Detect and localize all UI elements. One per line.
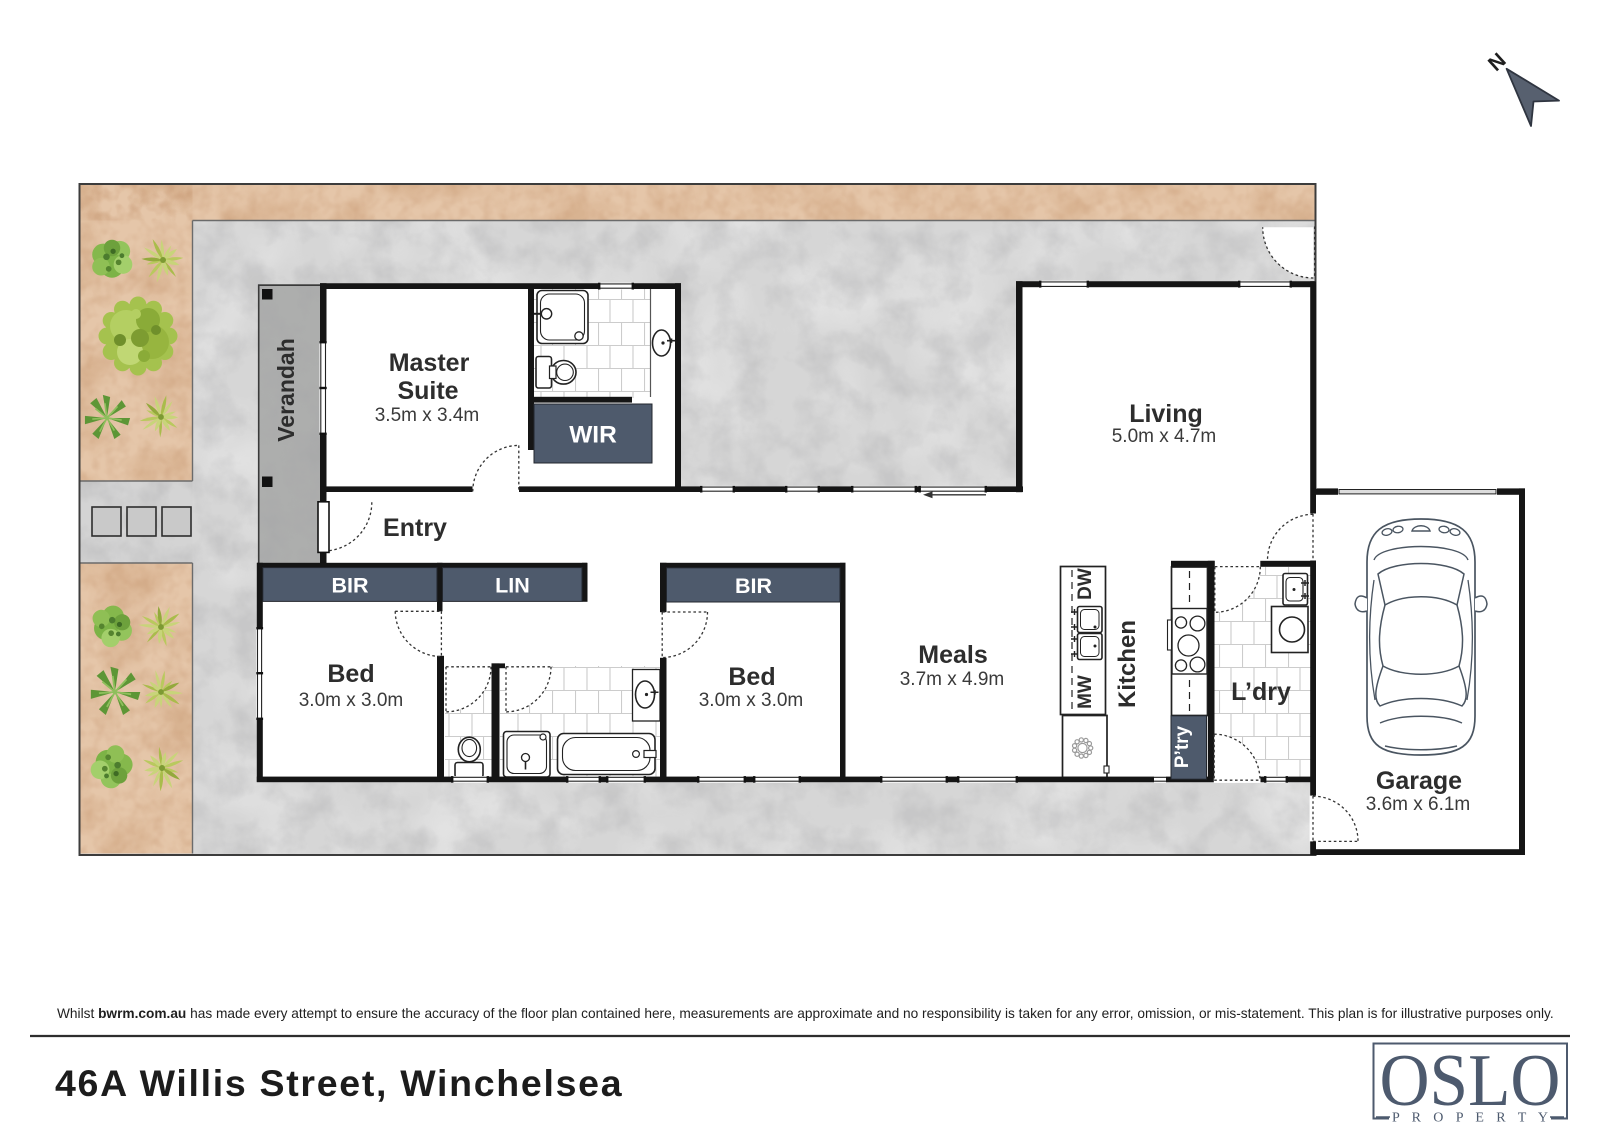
- svg-text:P R O P E R T Y: P R O P E R T Y: [1392, 1111, 1548, 1126]
- svg-text:5.0m x 4.7m: 5.0m x 4.7m: [1112, 426, 1217, 447]
- svg-text:Entry: Entry: [383, 514, 447, 542]
- svg-text:DW: DW: [1075, 568, 1096, 600]
- svg-text:Meals: Meals: [918, 641, 987, 669]
- svg-text:Bed: Bed: [327, 660, 374, 688]
- svg-text:3.0m x 3.0m: 3.0m x 3.0m: [699, 690, 804, 711]
- svg-text:Suite: Suite: [397, 377, 458, 405]
- svg-text:Bed: Bed: [728, 663, 775, 691]
- svg-text:N: N: [1484, 49, 1511, 76]
- svg-text:3.7m x 4.9m: 3.7m x 4.9m: [900, 669, 1005, 690]
- svg-text:L’dry: L’dry: [1231, 678, 1291, 706]
- svg-text:BIR: BIR: [735, 574, 773, 598]
- svg-text:3.0m x 3.0m: 3.0m x 3.0m: [299, 690, 404, 711]
- svg-text:WIR: WIR: [569, 422, 617, 449]
- svg-text:Whilst bwrm.com.au has made ev: Whilst bwrm.com.au has made every attemp…: [57, 1006, 1554, 1021]
- svg-text:46A Willis Street, Winchelsea: 46A Willis Street, Winchelsea: [55, 1062, 623, 1104]
- svg-text:P’try: P’try: [1172, 725, 1193, 768]
- svg-text:Kitchen: Kitchen: [1114, 620, 1141, 708]
- svg-text:BIR: BIR: [331, 574, 369, 598]
- svg-text:3.5m x 3.4m: 3.5m x 3.4m: [375, 405, 480, 426]
- svg-text:MW: MW: [1075, 675, 1096, 709]
- svg-text:Master: Master: [389, 349, 470, 377]
- svg-text:LIN: LIN: [495, 574, 530, 598]
- svg-text:Garage: Garage: [1376, 767, 1462, 795]
- svg-text:Verandah: Verandah: [273, 338, 299, 442]
- svg-text:Living: Living: [1129, 400, 1203, 428]
- svg-text:3.6m x 6.1m: 3.6m x 6.1m: [1366, 794, 1471, 815]
